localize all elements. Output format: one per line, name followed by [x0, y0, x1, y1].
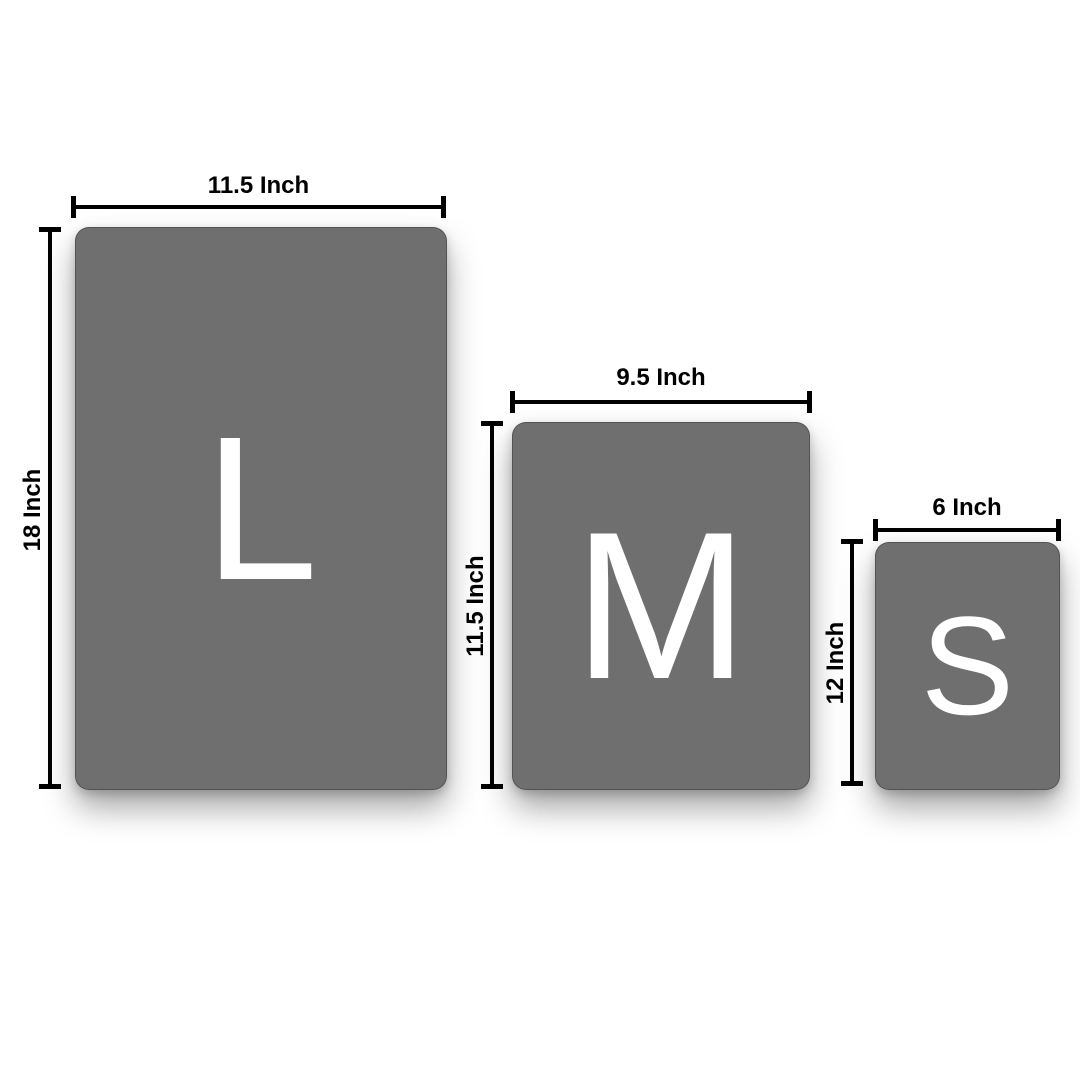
tick-icon: [510, 391, 515, 413]
large-width-dimension-line: [73, 205, 444, 209]
large-height-dimension-line: [48, 229, 52, 787]
size-comparison-diagram: 11.5 Inch 18 Inch L 9.5 Inch 11.5 Inch M…: [0, 0, 1080, 1080]
medium-height-label: 11.5 Inch: [462, 555, 490, 656]
small-height-dimension-line: [850, 541, 854, 784]
tick-icon: [873, 519, 878, 541]
large-height-label: 18 Inch: [19, 469, 47, 552]
medium-width-dimension-line: [512, 400, 810, 404]
small-width-dimension-line: [875, 528, 1059, 532]
large-size-letter: L: [204, 406, 318, 611]
tick-icon: [841, 781, 863, 786]
large-size-card: L: [75, 227, 447, 790]
tick-icon: [481, 421, 503, 426]
tick-icon: [39, 784, 61, 789]
medium-size-letter: M: [574, 501, 749, 711]
tick-icon: [807, 391, 812, 413]
tick-icon: [841, 539, 863, 544]
small-size-letter: S: [921, 596, 1014, 736]
large-width-label: 11.5 Inch: [73, 172, 444, 200]
tick-icon: [39, 227, 61, 232]
tick-icon: [481, 784, 503, 789]
medium-size-card: M: [512, 422, 810, 790]
tick-icon: [71, 196, 76, 218]
small-height-label: 12 Inch: [822, 622, 850, 705]
tick-icon: [1056, 519, 1061, 541]
tick-icon: [441, 196, 446, 218]
medium-height-dimension-line: [490, 423, 494, 787]
small-width-label: 6 Inch: [875, 494, 1059, 522]
small-size-card: S: [875, 542, 1060, 790]
medium-width-label: 9.5 Inch: [512, 364, 810, 392]
